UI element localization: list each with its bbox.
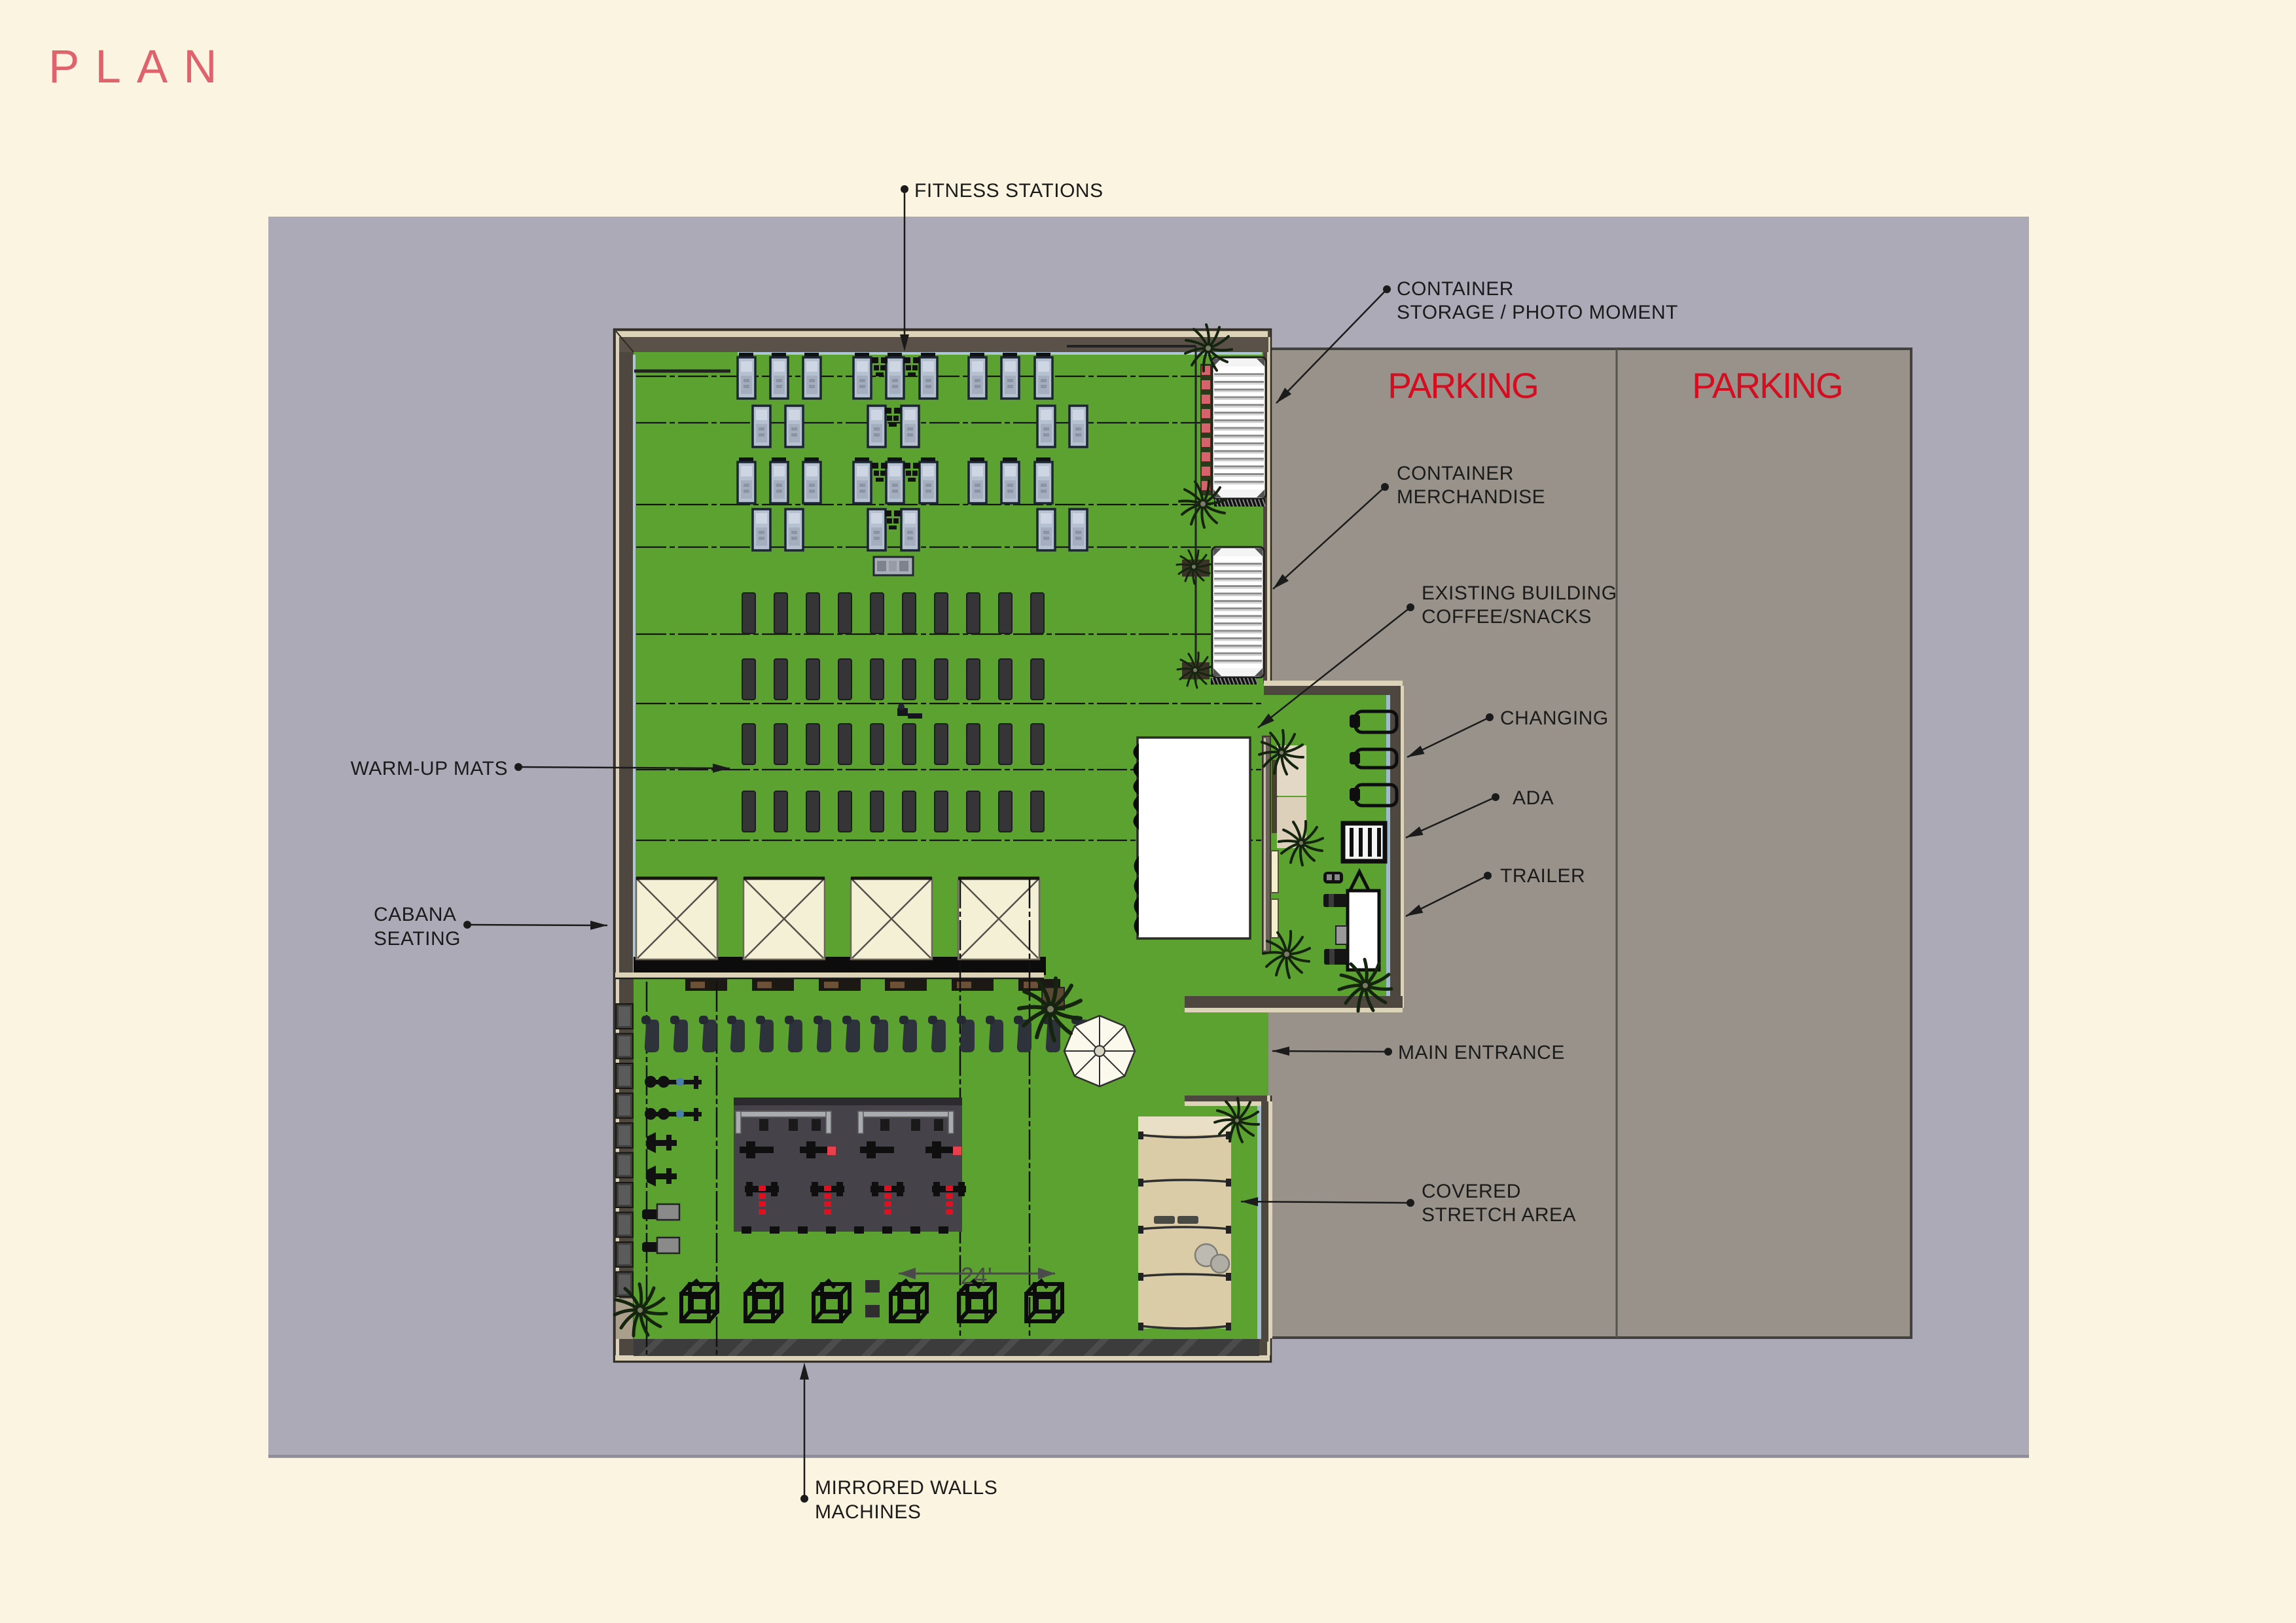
svg-text:MERCHANDISE: MERCHANDISE xyxy=(1397,486,1545,508)
svg-text:PARKING: PARKING xyxy=(1692,365,1842,406)
svg-text:MACHINES: MACHINES xyxy=(815,1501,921,1523)
svg-text:SEATING: SEATING xyxy=(374,928,461,950)
svg-text:CONTAINER: CONTAINER xyxy=(1397,278,1514,300)
svg-text:PARKING: PARKING xyxy=(1388,365,1537,406)
svg-text:STRETCH AREA: STRETCH AREA xyxy=(1422,1204,1576,1226)
svg-text:FITNESS STATIONS: FITNESS STATIONS xyxy=(914,180,1103,202)
svg-text:EXISTING BUILDING: EXISTING BUILDING xyxy=(1422,582,1617,604)
svg-text:COVERED: COVERED xyxy=(1422,1181,1521,1202)
svg-text:CABANA: CABANA xyxy=(374,904,456,925)
svg-text:CHANGING: CHANGING xyxy=(1500,707,1609,729)
svg-text:CONTAINER: CONTAINER xyxy=(1397,463,1514,484)
svg-text:COFFEE/SNACKS: COFFEE/SNACKS xyxy=(1422,606,1592,628)
svg-text:MAIN ENTRANCE: MAIN ENTRANCE xyxy=(1398,1042,1565,1063)
svg-text:ADA: ADA xyxy=(1513,787,1554,809)
svg-text:WARM-UP MATS: WARM-UP MATS xyxy=(351,758,508,779)
svg-text:MIRRORED WALLS: MIRRORED WALLS xyxy=(815,1477,997,1499)
svg-text:24': 24' xyxy=(961,1262,992,1289)
svg-text:TRAILER: TRAILER xyxy=(1500,865,1585,887)
svg-text:PLAN: PLAN xyxy=(48,41,232,93)
svg-text:STORAGE / PHOTO MOMENT: STORAGE / PHOTO MOMENT xyxy=(1397,302,1678,323)
